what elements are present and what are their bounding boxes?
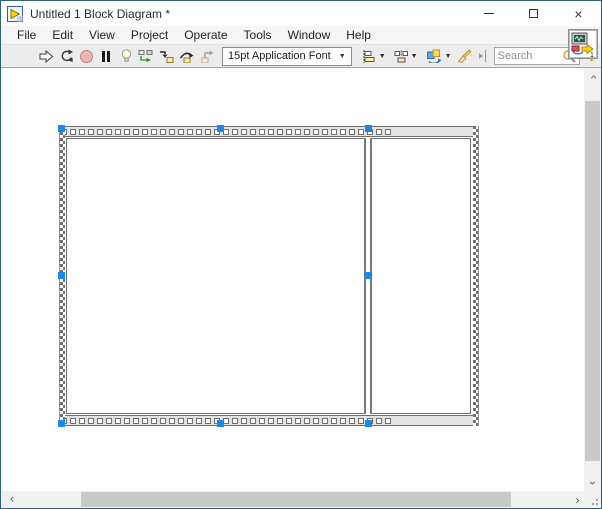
- vi-icon: 1: [569, 30, 597, 58]
- window-title: Untitled 1 Block Diagram *: [30, 7, 170, 21]
- chevron-up-icon: ›: [586, 75, 600, 79]
- align-objects-dropdown[interactable]: ▼: [359, 50, 389, 63]
- flat-sequence-structure[interactable]: [59, 126, 479, 426]
- distribute-objects-icon: [394, 50, 409, 63]
- minimize-button[interactable]: [466, 1, 511, 26]
- vertical-scrollbar[interactable]: › ›: [584, 68, 601, 491]
- maximize-icon: [529, 9, 538, 18]
- distribute-objects-dropdown[interactable]: ▼: [391, 50, 421, 63]
- titlebar: Untitled 1 Block Diagram * ×: [1, 1, 601, 26]
- block-diagram-canvas[interactable]: [1, 68, 584, 491]
- reorder-icon: [426, 49, 443, 63]
- selection-handle-top-divider[interactable]: [365, 125, 372, 132]
- retain-wire-values-button[interactable]: [137, 46, 155, 66]
- maximize-button[interactable]: [511, 1, 556, 26]
- abort-button[interactable]: [77, 46, 95, 66]
- menu-edit[interactable]: Edit: [44, 28, 81, 42]
- run-continuously-icon: [59, 49, 74, 63]
- search-box: [494, 47, 580, 65]
- step-out-icon: [199, 50, 214, 63]
- pause-button[interactable]: [97, 46, 115, 66]
- chevron-down-icon: ▼: [339, 53, 346, 60]
- menu-view[interactable]: View: [81, 28, 123, 42]
- clean-up-diagram-button[interactable]: [457, 46, 475, 66]
- selection-handle-bottom-middle[interactable]: [217, 420, 224, 427]
- chevron-down-icon: ▼: [445, 53, 452, 60]
- toolbar-separator: [479, 50, 486, 62]
- chevron-down-icon: ▼: [379, 53, 386, 60]
- retain-wire-values-icon: [138, 49, 154, 63]
- selection-handle-divider-middle[interactable]: [365, 272, 372, 279]
- sequence-border-top: [59, 126, 479, 137]
- selection-handle-bottom-divider[interactable]: [365, 420, 372, 427]
- close-icon: ×: [574, 7, 582, 21]
- menubar: File Edit View Project Operate Tools Win…: [1, 26, 601, 44]
- minimize-icon: [484, 13, 494, 14]
- pause-icon: [102, 51, 110, 62]
- selection-handle-top-left[interactable]: [58, 125, 65, 132]
- reorder-dropdown[interactable]: ▼: [423, 49, 455, 63]
- labview-window: Untitled 1 Block Diagram * × File Edit V…: [0, 0, 602, 509]
- run-button[interactable]: [37, 46, 55, 66]
- font-selector-value: 15pt Application Font: [228, 50, 331, 62]
- labview-app-icon: [7, 6, 23, 22]
- menu-help[interactable]: Help: [338, 28, 379, 42]
- horizontal-scrollbar[interactable]: › ›: [1, 491, 586, 508]
- sequence-border-right: [473, 126, 479, 426]
- abort-icon: [80, 50, 93, 63]
- menu-file[interactable]: File: [9, 28, 44, 42]
- toolbar: 15pt Application Font ▼ ▼ ▼: [1, 44, 601, 68]
- selection-handle-bottom-left[interactable]: [58, 420, 65, 427]
- menu-operate[interactable]: Operate: [176, 28, 235, 42]
- sequence-border-bottom: [59, 415, 479, 426]
- broom-icon: [457, 49, 474, 63]
- sequence-frame-2[interactable]: [370, 138, 471, 414]
- window-controls: ×: [466, 1, 601, 26]
- scroll-left-button[interactable]: ›: [3, 491, 20, 508]
- light-bulb-icon: [120, 49, 133, 63]
- vi-icon-button[interactable]: 1: [568, 29, 598, 59]
- sequence-frame-1[interactable]: [66, 138, 366, 414]
- align-objects-icon: [362, 50, 377, 63]
- highlight-execution-button[interactable]: [117, 46, 135, 66]
- step-out-button[interactable]: [197, 46, 215, 66]
- font-selector[interactable]: 15pt Application Font ▼: [222, 47, 352, 66]
- step-into-icon: [159, 50, 174, 63]
- step-over-button[interactable]: [177, 46, 195, 66]
- run-icon: [39, 50, 54, 63]
- selection-handle-top-middle[interactable]: [217, 125, 224, 132]
- svg-text:1: 1: [590, 52, 594, 58]
- run-continuously-button[interactable]: [57, 46, 75, 66]
- resize-grip[interactable]: [584, 491, 601, 508]
- chevron-down-icon: ▼: [411, 53, 418, 60]
- menu-tools[interactable]: Tools: [236, 28, 280, 42]
- chevron-left-icon: ›: [10, 493, 14, 507]
- vertical-scrollbar-thumb[interactable]: [585, 101, 600, 461]
- close-button[interactable]: ×: [556, 1, 601, 26]
- selection-handle-left-middle[interactable]: [58, 272, 65, 279]
- search-input[interactable]: [498, 50, 562, 62]
- step-into-button[interactable]: [157, 46, 175, 66]
- chevron-right-icon: ›: [576, 493, 580, 507]
- step-over-icon: [179, 50, 194, 63]
- scroll-down-button[interactable]: ›: [584, 474, 601, 491]
- scroll-up-button[interactable]: ›: [584, 68, 601, 85]
- chevron-down-icon: ›: [586, 481, 600, 485]
- menu-project[interactable]: Project: [123, 28, 176, 42]
- horizontal-scrollbar-thumb[interactable]: [81, 492, 511, 507]
- menu-window[interactable]: Window: [280, 28, 339, 42]
